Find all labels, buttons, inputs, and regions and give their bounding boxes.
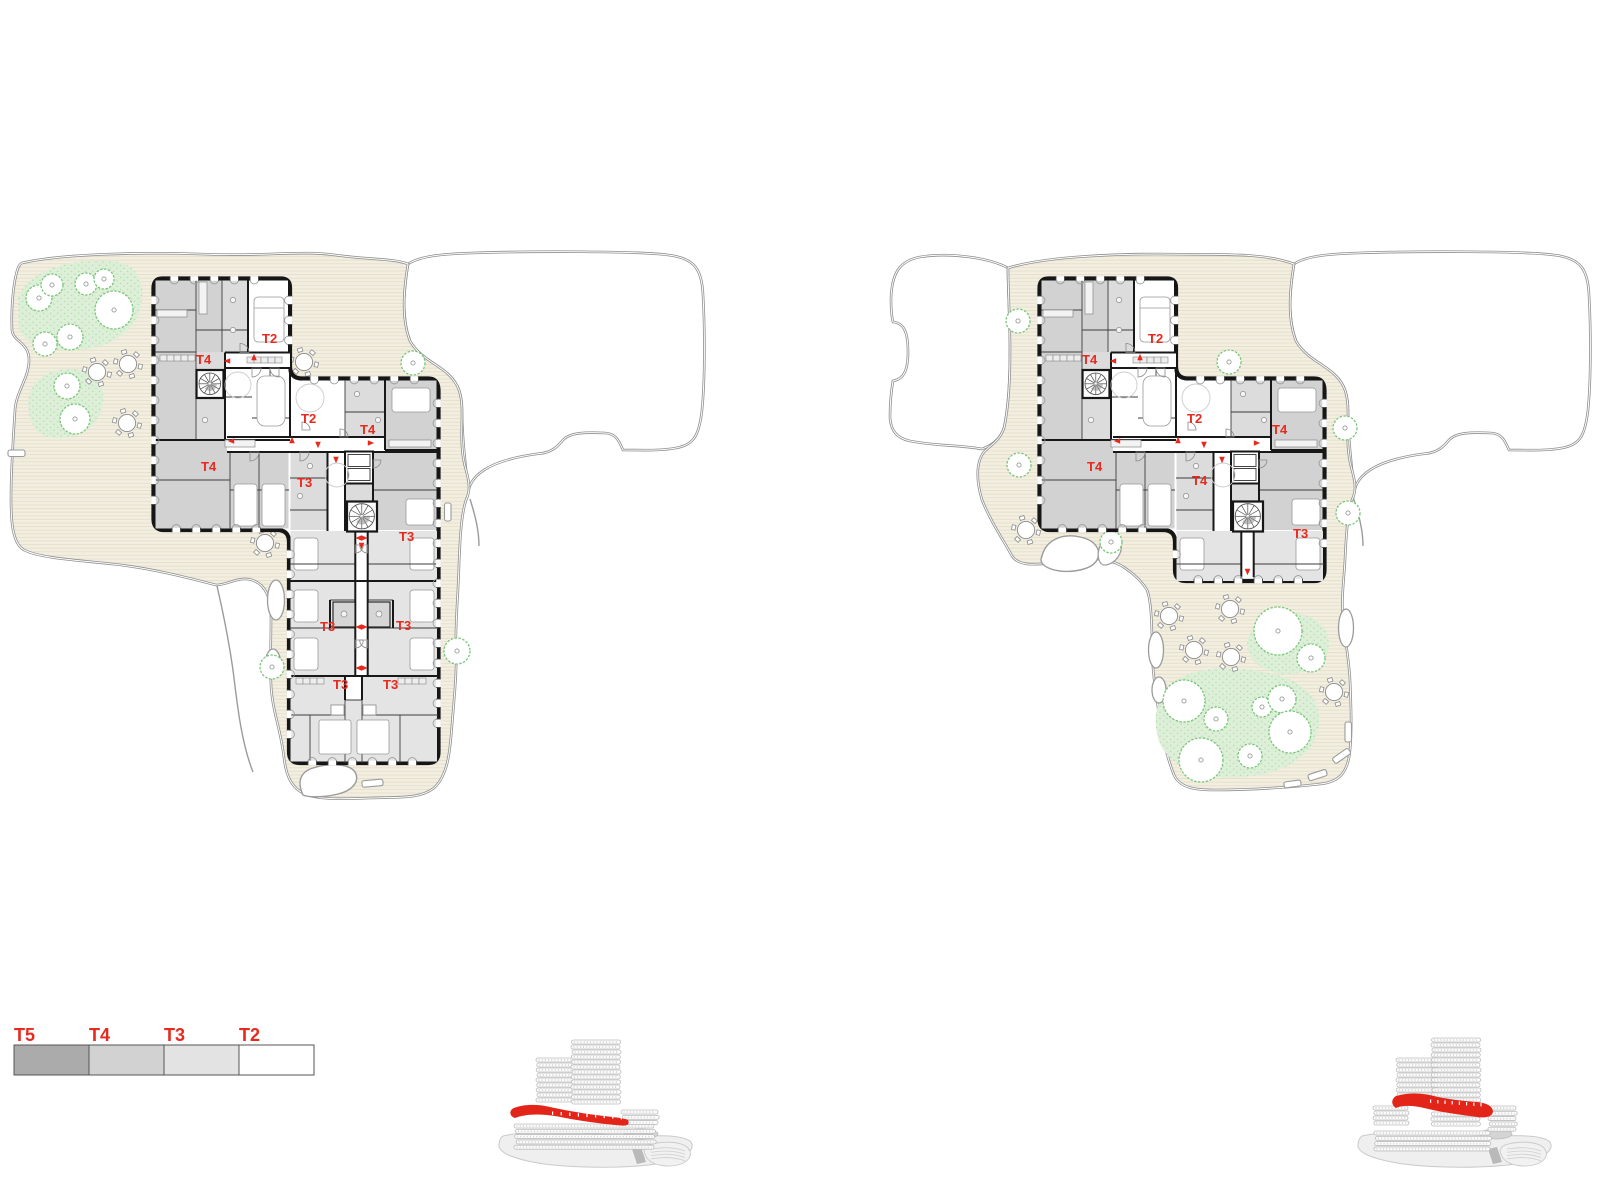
svg-text:T3: T3 [164,1025,185,1045]
svg-text:T4: T4 [360,422,376,437]
svg-text:T4: T4 [89,1025,110,1045]
svg-text:T3: T3 [297,475,312,490]
svg-text:T2: T2 [301,411,316,426]
svg-text:T3: T3 [383,677,398,692]
svg-text:T4: T4 [1272,422,1288,437]
svg-text:T3: T3 [399,529,414,544]
svg-text:T4: T4 [1087,459,1103,474]
svg-text:T4: T4 [1192,473,1208,488]
svg-text:T2: T2 [1187,411,1202,426]
svg-text:T5: T5 [14,1025,35,1045]
svg-text:T4: T4 [201,459,217,474]
svg-text:T2: T2 [239,1025,260,1045]
svg-text:T3: T3 [1293,526,1308,541]
svg-text:T3: T3 [333,677,348,692]
svg-text:T2: T2 [1148,331,1163,346]
svg-text:T2: T2 [262,331,277,346]
svg-text:T4: T4 [196,352,212,367]
svg-text:T3: T3 [320,619,335,634]
svg-text:T3: T3 [396,618,411,633]
svg-text:T4: T4 [1082,352,1098,367]
